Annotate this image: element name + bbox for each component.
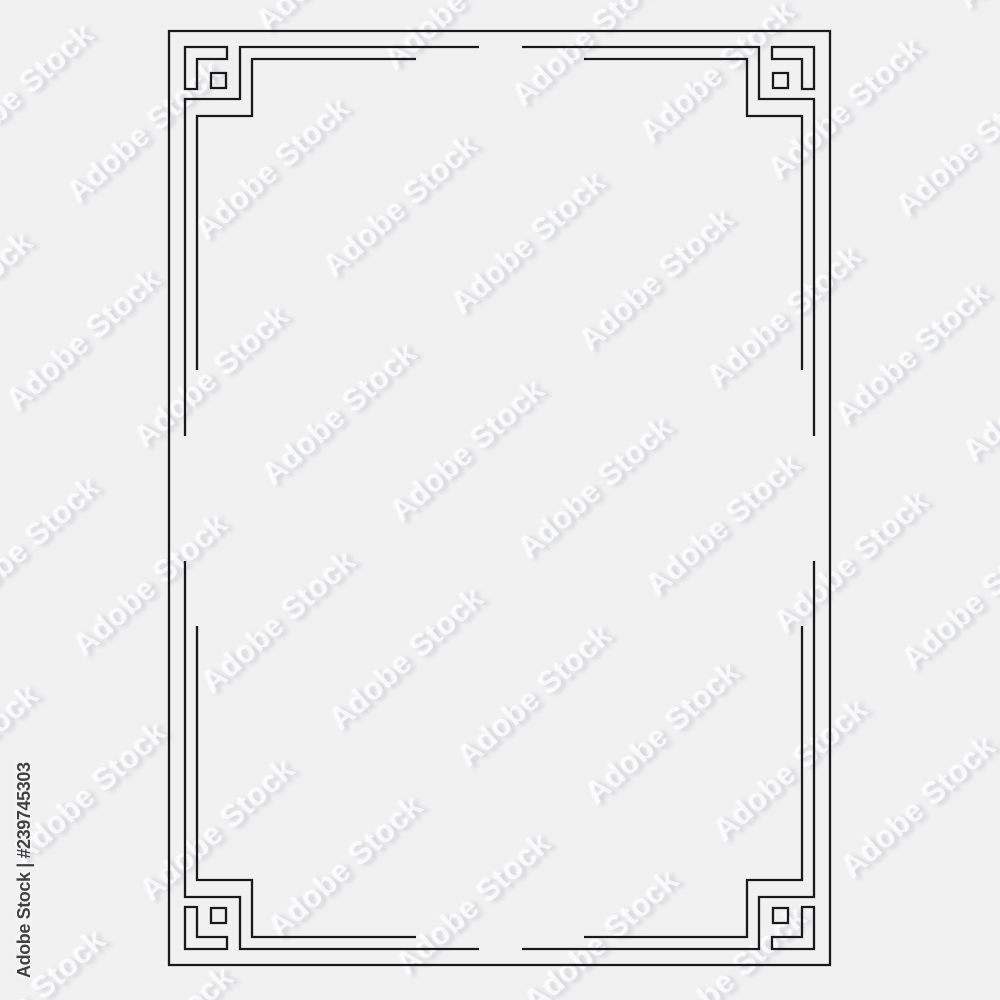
second-inner-line-top-left <box>197 59 416 370</box>
inner-line-bottom-right <box>522 561 814 949</box>
corner-square-top-left <box>211 73 226 88</box>
inner-line-top-right <box>522 47 814 436</box>
corner-bracket-bottom-left <box>185 907 227 949</box>
corner-square-top-right <box>773 73 788 88</box>
second-inner-line-top-right <box>584 59 802 370</box>
corner-square-bottom-left <box>211 908 226 923</box>
stock-image-canvas: Adobe StockAdobe StockAdobe StockAdobe S… <box>0 0 1000 1000</box>
second-inner-line-bottom-right <box>584 626 802 937</box>
ornamental-frame <box>0 0 1000 1000</box>
stock-credit-text: Adobe Stock | #239745303 <box>14 762 35 978</box>
corner-square-bottom-right <box>773 908 788 923</box>
inner-line-bottom-left <box>185 561 479 949</box>
outer-border <box>169 31 830 965</box>
second-inner-line-bottom-left <box>197 626 416 937</box>
corner-bracket-top-right <box>772 47 814 89</box>
inner-line-top-left <box>185 47 479 436</box>
corner-bracket-bottom-right <box>772 907 814 949</box>
corner-bracket-top-left <box>185 47 227 89</box>
